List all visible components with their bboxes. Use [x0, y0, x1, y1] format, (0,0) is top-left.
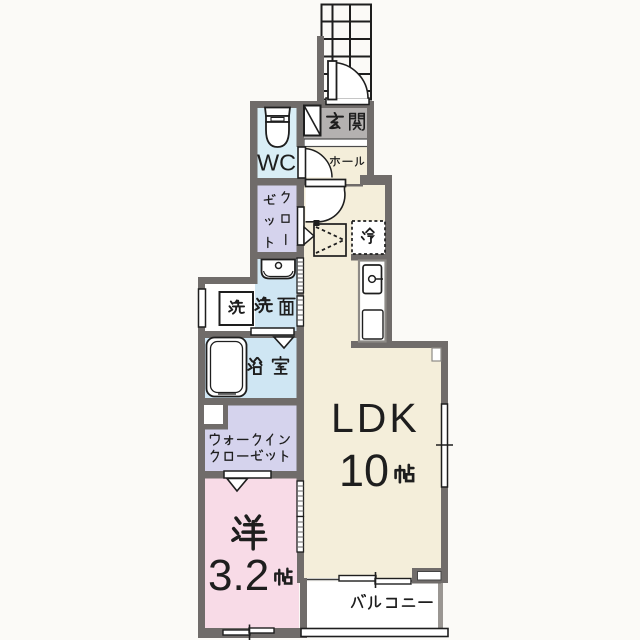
svg-text:3.2: 3.2	[208, 551, 269, 600]
svg-text:LDK: LDK	[331, 395, 420, 441]
svg-text:WC: WC	[257, 150, 296, 176]
svg-text:10: 10	[339, 445, 389, 496]
